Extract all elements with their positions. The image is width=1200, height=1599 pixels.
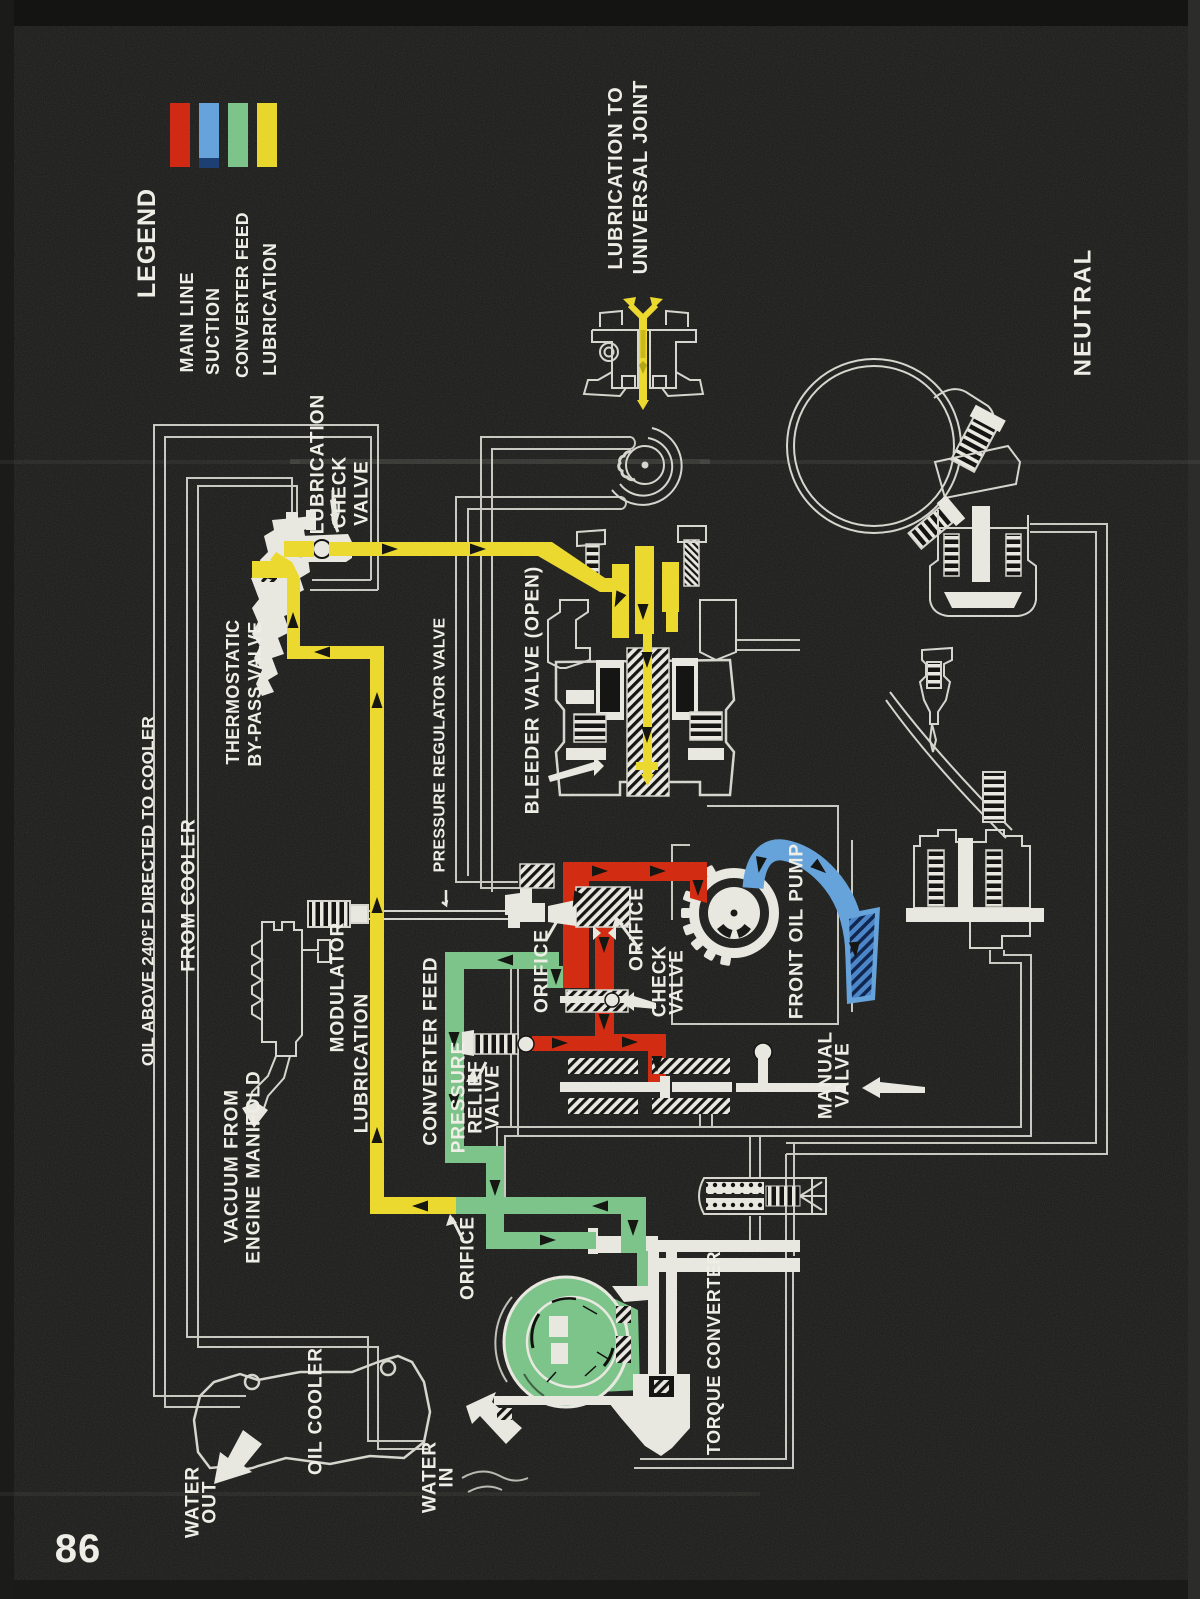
svg-text:VALVE: VALVE [667,949,688,1015]
svg-text:OIL COOLER: OIL COOLER [306,1347,327,1475]
svg-text:UNIVERSAL JOINT: UNIVERSAL JOINT [630,80,652,275]
svg-text:VACUUM FROM: VACUUM FROM [222,1089,243,1243]
svg-text:MODULATOR: MODULATOR [328,922,349,1053]
svg-text:LUBRICATION: LUBRICATION [352,993,373,1133]
svg-text:BY-PASS VALVE: BY-PASS VALVE [245,621,265,766]
svg-text:VALVE: VALVE [352,460,373,526]
svg-text:PRESSURE REGULATOR VALVE: PRESSURE REGULATOR VALVE [432,618,449,873]
svg-text:NEUTRAL: NEUTRAL [1070,248,1097,377]
svg-text:LUBRICATION: LUBRICATION [260,242,280,376]
svg-text:OIL ABOVE 240°F DIRECTED TO CO: OIL ABOVE 240°F DIRECTED TO COOLER [139,716,158,1066]
svg-text:CONVERTER FEED: CONVERTER FEED [421,956,442,1145]
svg-text:VALVE: VALVE [483,1064,504,1130]
svg-text:TORQUE CONVERTER: TORQUE CONVERTER [704,1251,724,1455]
svg-text:OUT: OUT [200,1480,221,1523]
svg-text:CONVERTER FEED: CONVERTER FEED [232,212,252,378]
svg-text:86: 86 [55,1527,102,1571]
svg-text:ORIFICE: ORIFICE [627,887,648,971]
svg-text:IN: IN [437,1467,458,1488]
svg-text:VALVE: VALVE [833,1042,854,1108]
svg-text:ENGINE MANIFOLD: ENGINE MANIFOLD [244,1070,265,1263]
svg-text:ORIFICE: ORIFICE [458,1216,479,1300]
svg-text:LUBRICATION: LUBRICATION [308,394,329,534]
svg-text:ORIFICE: ORIFICE [532,929,553,1013]
svg-text:BLEEDER VALVE (OPEN): BLEEDER VALVE (OPEN) [523,566,544,814]
svg-text:FROM COOLER: FROM COOLER [179,818,200,972]
svg-text:MAIN LINE: MAIN LINE [177,272,197,373]
svg-text:LUBRICATION TO: LUBRICATION TO [605,86,627,269]
svg-text:LEGEND: LEGEND [133,188,161,298]
svg-text:THERMOSTATIC: THERMOSTATIC [223,619,243,764]
svg-text:FRONT OIL PUMP: FRONT OIL PUMP [787,843,808,1019]
svg-text:SUCTION: SUCTION [203,287,223,375]
